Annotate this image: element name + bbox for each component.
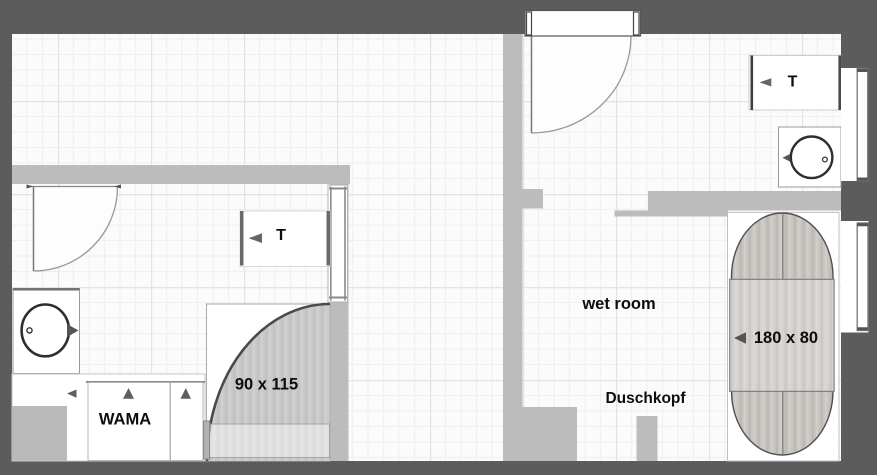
svg-text:T: T [788,74,798,91]
svg-text:T: T [276,227,286,244]
svg-text:wet room: wet room [581,295,655,313]
svg-text:WAMA: WAMA [99,411,151,429]
svg-text:180 x 80: 180 x 80 [754,329,818,347]
svg-text:Duschkopf: Duschkopf [605,390,686,407]
svg-text:90 x 115: 90 x 115 [235,376,298,394]
